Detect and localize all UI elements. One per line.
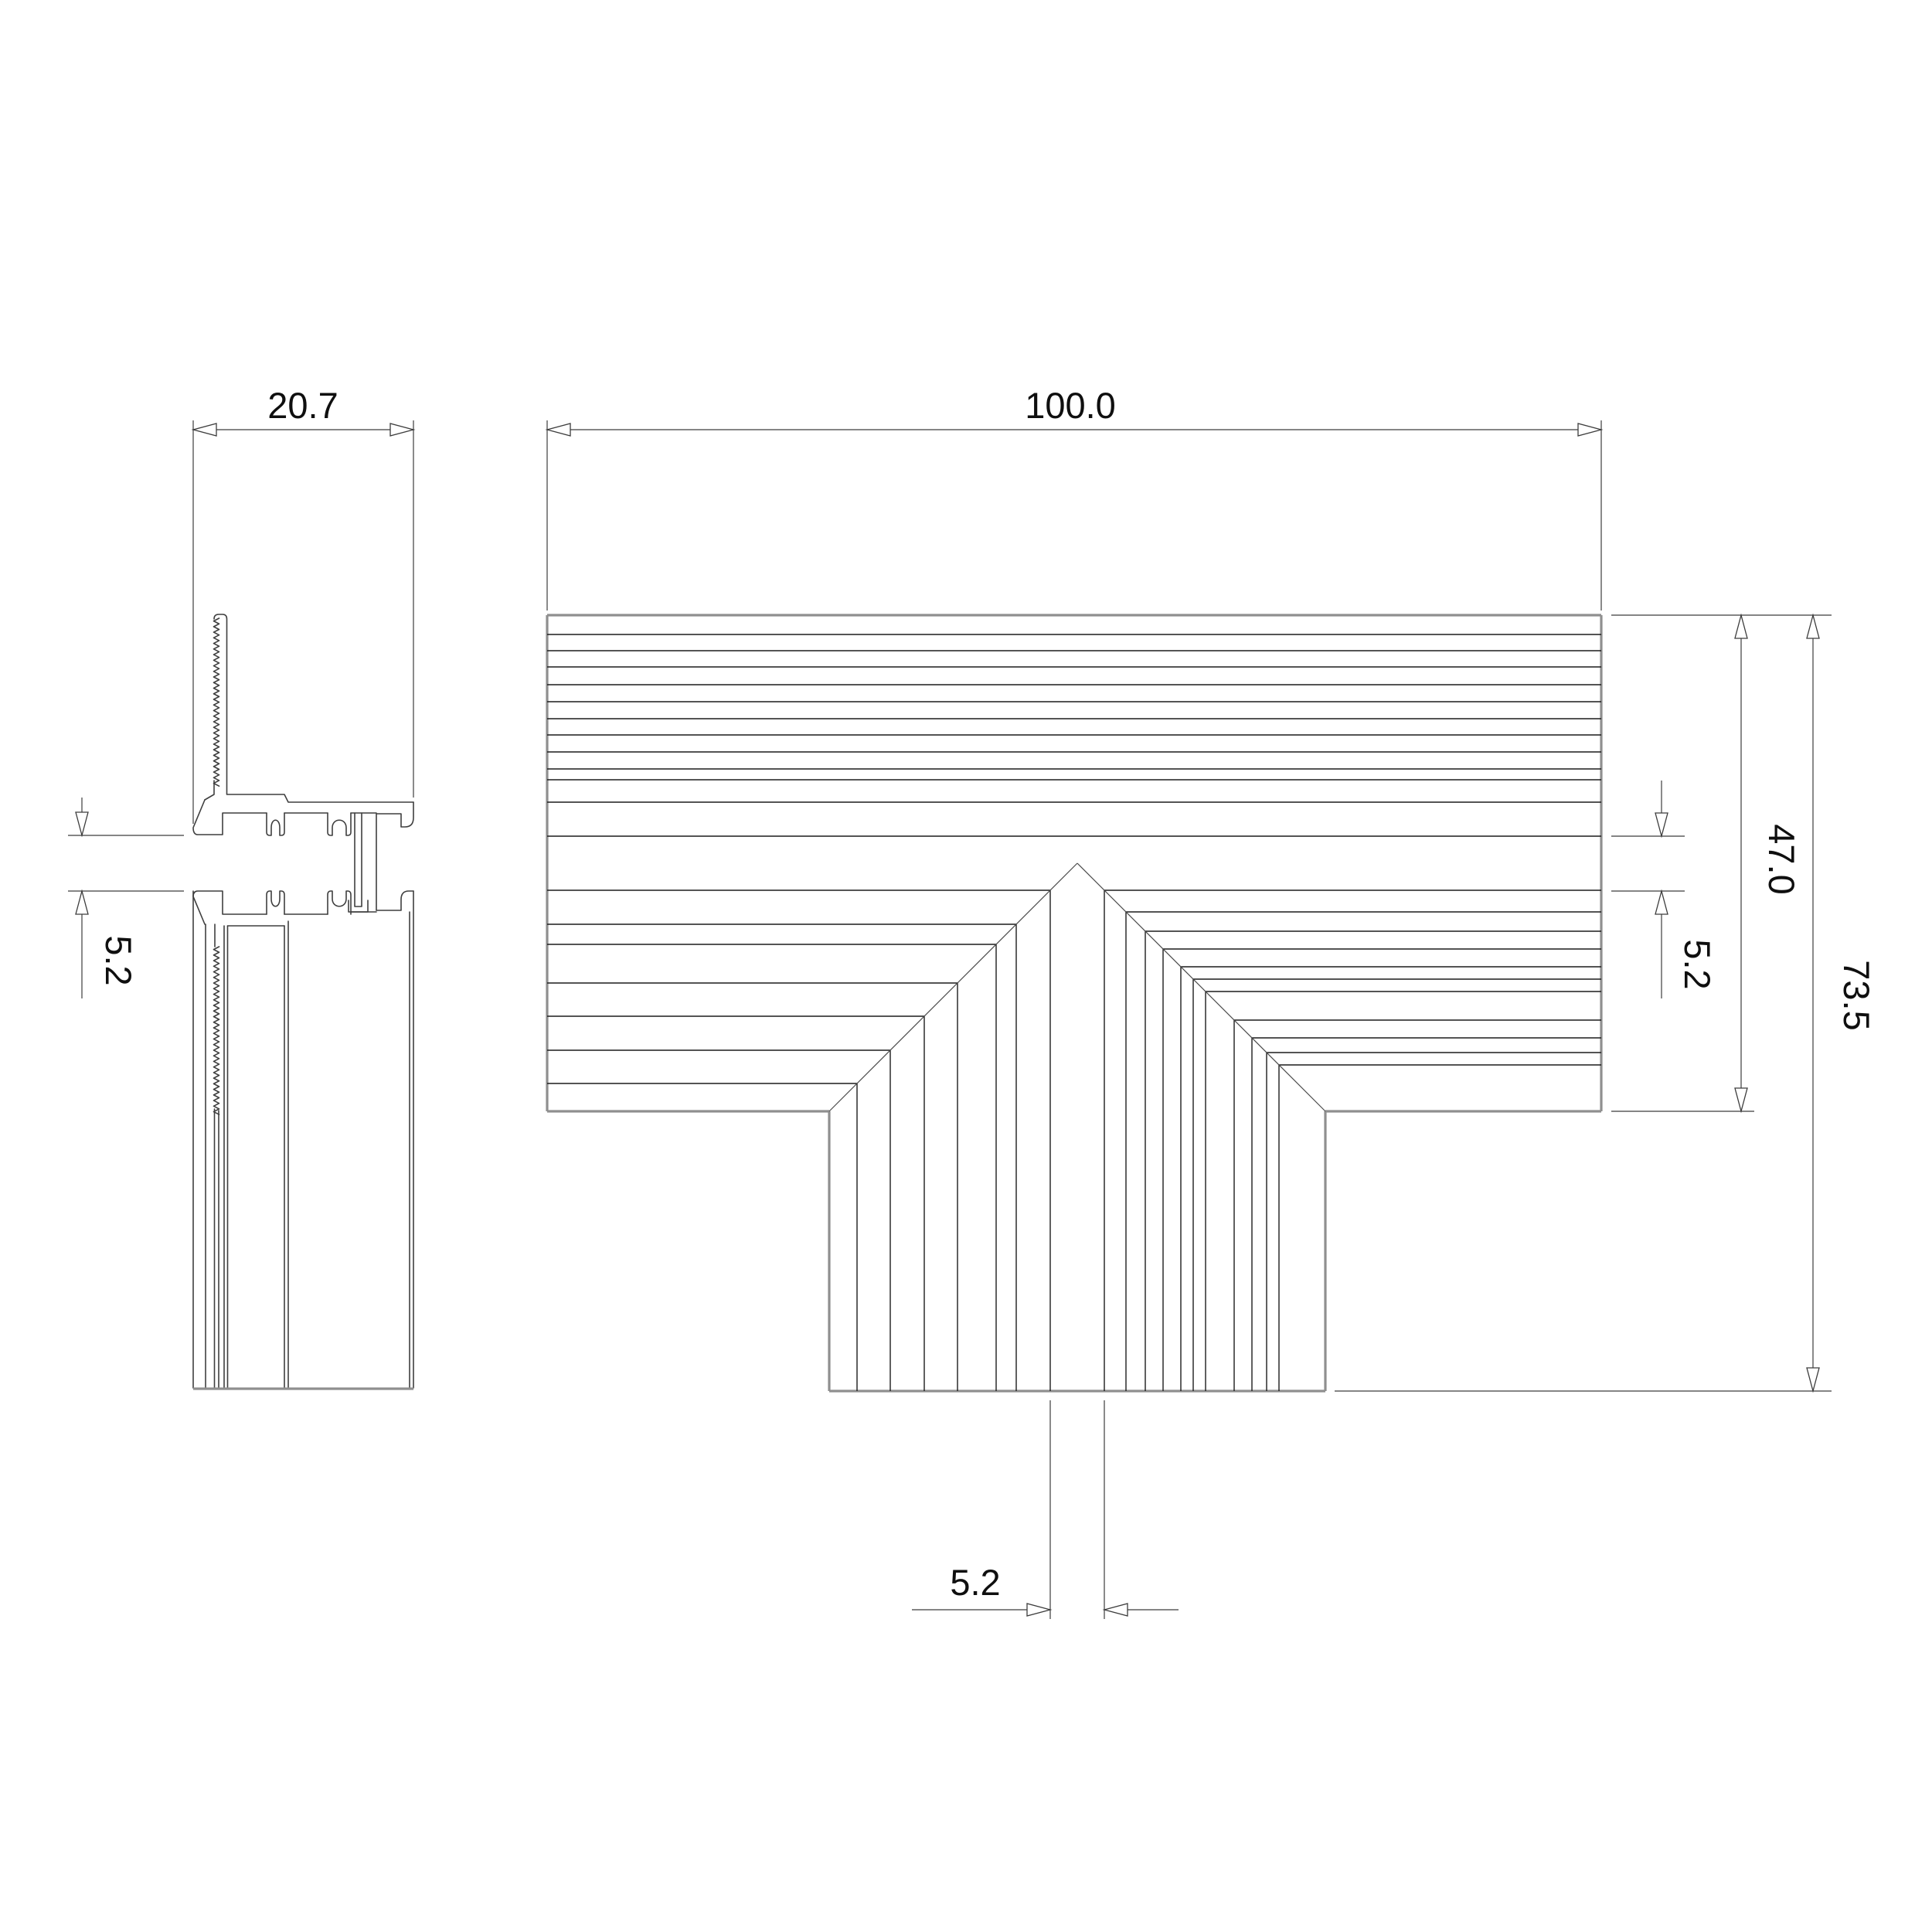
upper-profile-strip-foot — [205, 781, 214, 800]
dim-label-depth: 47.0 — [1761, 824, 1802, 894]
dim-label-overall-height: 73.5 — [1836, 960, 1877, 1030]
lower-profile-serration — [214, 947, 219, 1114]
dimension-arrowhead — [547, 423, 570, 436]
dimension-arrowhead — [1104, 1604, 1128, 1616]
dim-label-section-width: 20.7 — [267, 385, 338, 426]
arrowheads — [1655, 813, 1668, 914]
dimension-arrowhead — [1027, 1604, 1050, 1616]
front-view — [547, 615, 1601, 1391]
dim-label-gap-left: 5.2 — [98, 935, 139, 985]
dimension-arrowhead — [1655, 813, 1668, 836]
upper-profile-strip-outline — [214, 614, 413, 802]
dim-front-width: 100.0 — [547, 385, 1601, 611]
dimension-arrowhead — [390, 423, 413, 436]
arrowheads — [1027, 1604, 1128, 1616]
upper-profile-serration — [214, 618, 219, 786]
dimension-arrowhead — [76, 891, 88, 914]
dim-label-front-width: 100.0 — [1025, 385, 1116, 426]
lower-strip-right-pair — [224, 926, 228, 1388]
dimension-arrowhead — [1807, 615, 1819, 638]
dim-center-channel: 5.2 — [912, 1400, 1179, 1619]
upper-profile-right-hook — [376, 802, 413, 910]
lower-profile-leg — [193, 891, 267, 924]
arrowheads — [76, 812, 88, 914]
dimension-arrowhead — [1655, 891, 1668, 914]
lower-right-pair — [410, 891, 413, 1388]
dim-overall-height: 73.5 — [1335, 615, 1877, 1391]
dim-label-gap-right: 5.2 — [1677, 939, 1718, 989]
upper-profile-leg — [193, 800, 267, 835]
dim-label-center-channel: 5.2 — [950, 1562, 1000, 1603]
front-view-vertical-ribs — [857, 890, 1279, 1391]
lower-screw-port-2 — [328, 891, 351, 914]
dim-gap-left: 5.2 — [68, 798, 184, 998]
drawing-canvas: 20.7 100.0 47.0 5.2 73.5 5.2 5.2 — [0, 0, 1932, 1932]
dimension-arrowhead — [1807, 1368, 1819, 1391]
section-view — [193, 614, 413, 1389]
dimension-arrowhead — [193, 423, 216, 436]
upper-screw-port-2 — [328, 813, 351, 835]
technical-drawing: 20.7 100.0 47.0 5.2 73.5 5.2 5.2 — [0, 0, 1932, 1932]
front-view-outline — [547, 615, 1601, 1391]
lower-screw-port-1 — [267, 891, 284, 914]
dimension-arrowhead — [76, 812, 88, 835]
dimension-arrowhead — [1735, 1088, 1747, 1111]
dimension-arrowhead — [1735, 615, 1747, 638]
dimension-arrowhead — [1578, 423, 1601, 436]
front-view-ribs — [547, 634, 1601, 1083]
upper-screw-port-1 — [267, 813, 284, 835]
lower-mid-pair — [284, 921, 288, 1388]
dim-gap-right: 5.2 — [1611, 781, 1718, 998]
lower-profile-right-hook — [376, 891, 413, 910]
upper-profile-tab — [355, 813, 362, 906]
miter-diagonals — [829, 863, 1325, 1111]
dim-depth: 47.0 — [1611, 615, 1802, 1111]
lower-strip-tails — [215, 1109, 219, 1388]
